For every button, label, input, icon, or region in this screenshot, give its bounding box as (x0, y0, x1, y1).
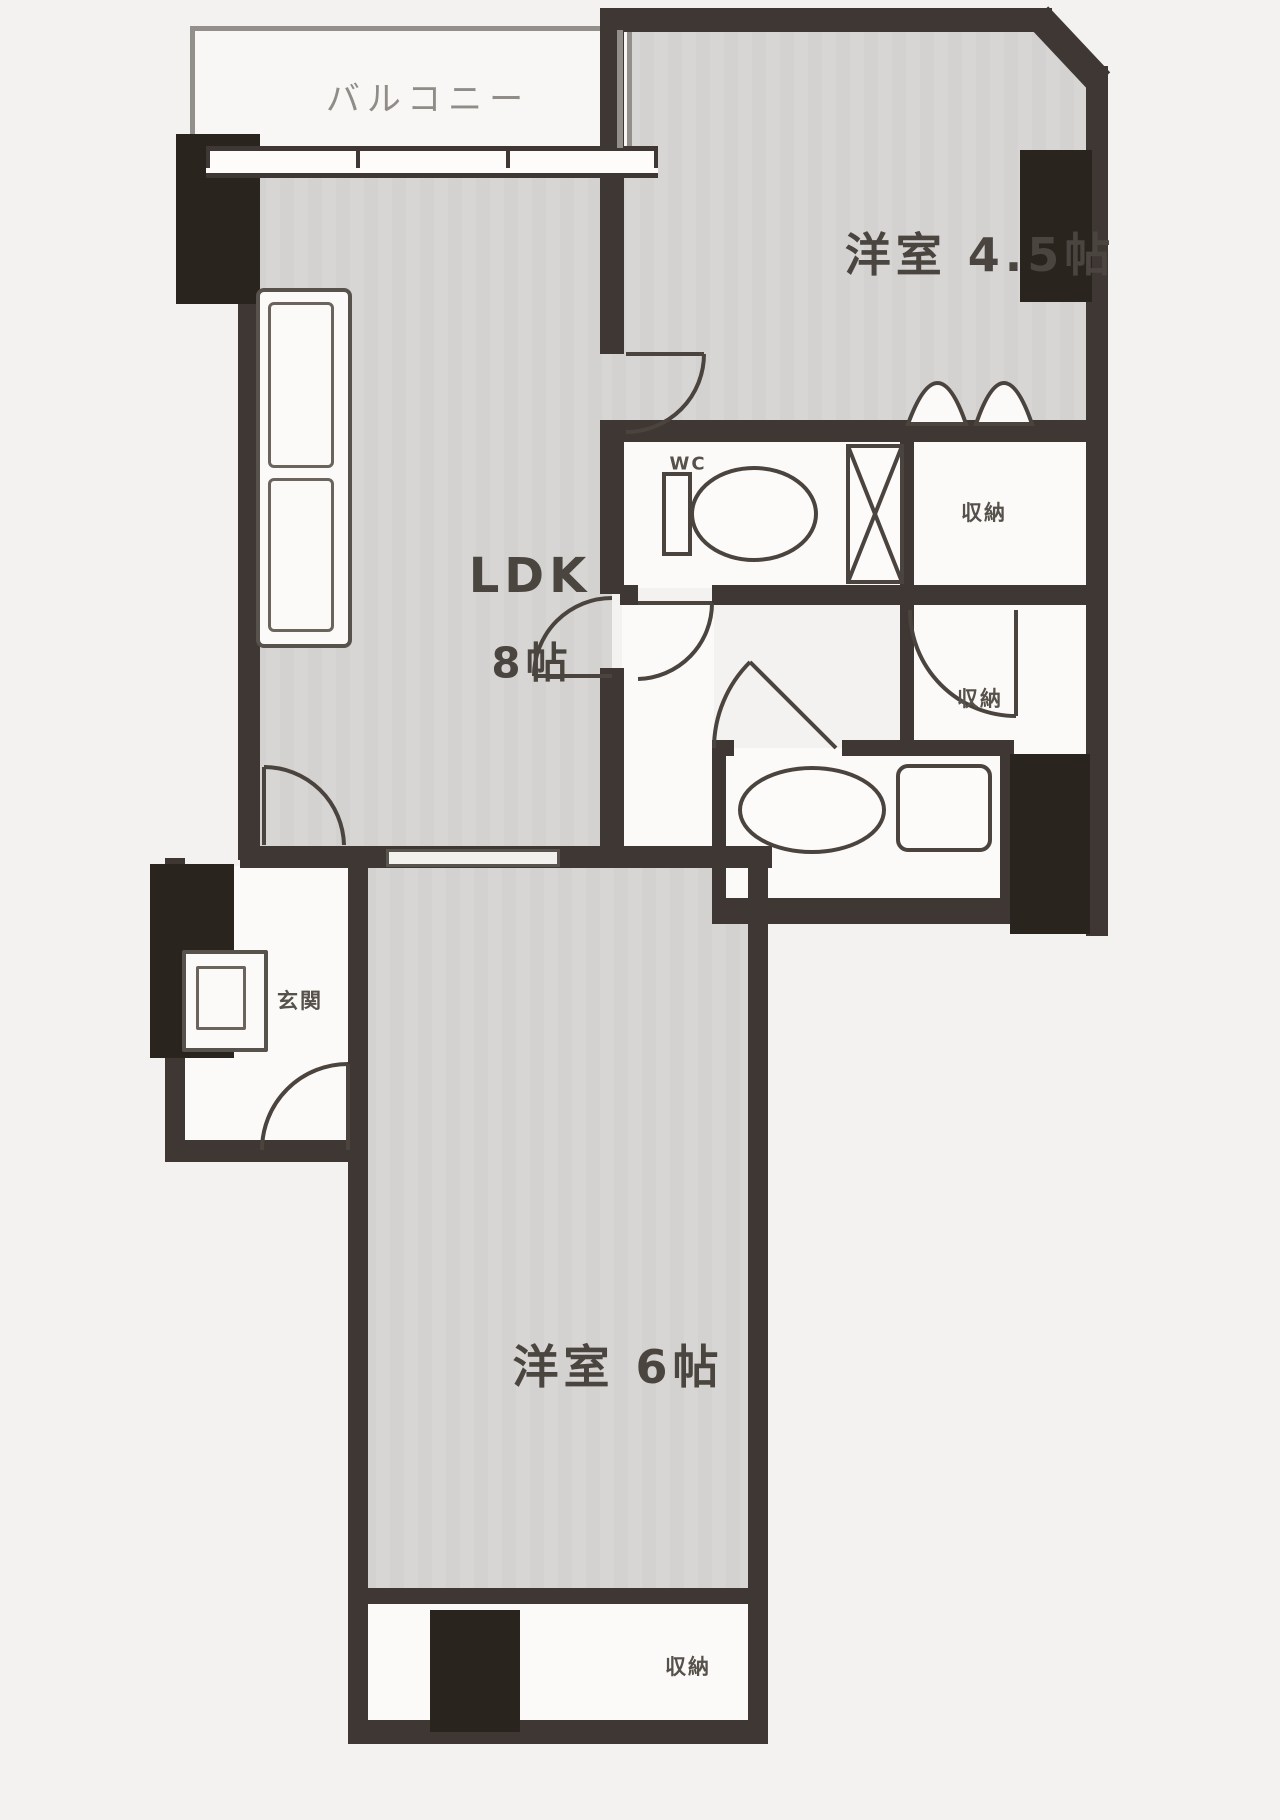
bathroom-door (714, 662, 836, 748)
door-arc (262, 1064, 348, 1150)
bathtub-fixture (740, 768, 884, 852)
toilet-label: WC (669, 454, 706, 475)
balcony-label: バルコニー (326, 72, 530, 121)
entrance-label: 玄関 (277, 985, 323, 1015)
western-room-4-5-label: 洋室 4.5帖 (845, 219, 1116, 285)
closet-mid-right-label: 収納 (957, 683, 1003, 713)
closet-upper-right-label: 収納 (961, 497, 1007, 527)
folding-closet-doors (908, 383, 1032, 424)
washing-machine-icon (848, 446, 902, 582)
chamfer-wall (1038, 16, 1100, 82)
ldk-label: LDK (469, 548, 592, 604)
ldk-size-label: 8帖 (491, 630, 572, 691)
toilet-fixture (664, 468, 816, 560)
door-arc (264, 767, 344, 845)
floor-plan: バルコニー 洋室 4.5帖 LDK 8帖 洋室 6帖 玄関 WC 収納 収納 収… (0, 0, 1280, 1820)
western-room-6-label: 洋室 6帖 (512, 1331, 723, 1397)
vanity-fixture (898, 766, 990, 850)
closet-bottom-label: 収納 (665, 1651, 711, 1681)
door-arc (626, 354, 704, 432)
door-arc (638, 603, 712, 679)
